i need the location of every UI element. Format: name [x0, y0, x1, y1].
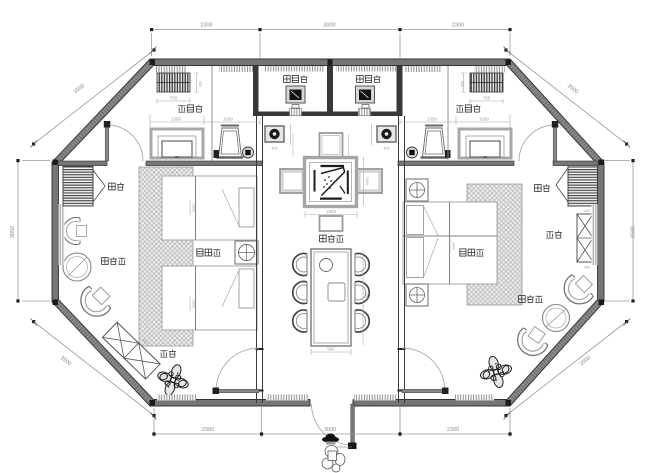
- svg-text:3050: 3050: [10, 226, 16, 238]
- svg-text:750: 750: [483, 96, 491, 101]
- svg-text:400: 400: [383, 147, 389, 151]
- svg-text:400: 400: [271, 147, 277, 151]
- svg-text:1500: 1500: [365, 177, 369, 185]
- svg-text:1050: 1050: [427, 117, 438, 122]
- svg-text:3000: 3000: [323, 23, 335, 29]
- svg-text:400: 400: [584, 209, 590, 213]
- svg-text:2300: 2300: [452, 23, 464, 29]
- svg-text:900: 900: [327, 347, 335, 352]
- svg-text:1200: 1200: [192, 203, 196, 211]
- svg-text:1050: 1050: [171, 117, 182, 122]
- svg-text:3050: 3050: [629, 226, 635, 238]
- svg-text:450: 450: [460, 81, 464, 87]
- svg-text:1050: 1050: [479, 117, 490, 122]
- svg-text:750: 750: [170, 96, 178, 101]
- svg-text:2300: 2300: [202, 427, 214, 433]
- svg-text:400: 400: [584, 266, 590, 270]
- svg-text:450: 450: [198, 81, 202, 87]
- svg-text:2000: 2000: [365, 293, 369, 301]
- svg-text:1200: 1200: [192, 299, 196, 307]
- svg-text:1500: 1500: [326, 209, 337, 214]
- svg-text:1800: 1800: [452, 241, 456, 249]
- svg-text:2300: 2300: [447, 427, 459, 433]
- svg-text:2300: 2300: [200, 23, 212, 29]
- svg-text:3000: 3000: [324, 427, 336, 433]
- svg-text:1050: 1050: [223, 117, 234, 122]
